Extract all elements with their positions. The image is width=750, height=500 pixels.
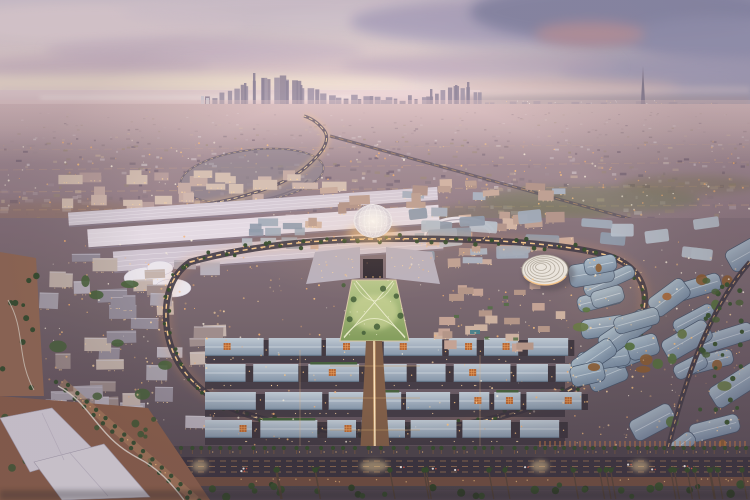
atmosphere [0,0,750,500]
aerial-render [0,0,750,500]
scene-canvas [0,0,750,500]
